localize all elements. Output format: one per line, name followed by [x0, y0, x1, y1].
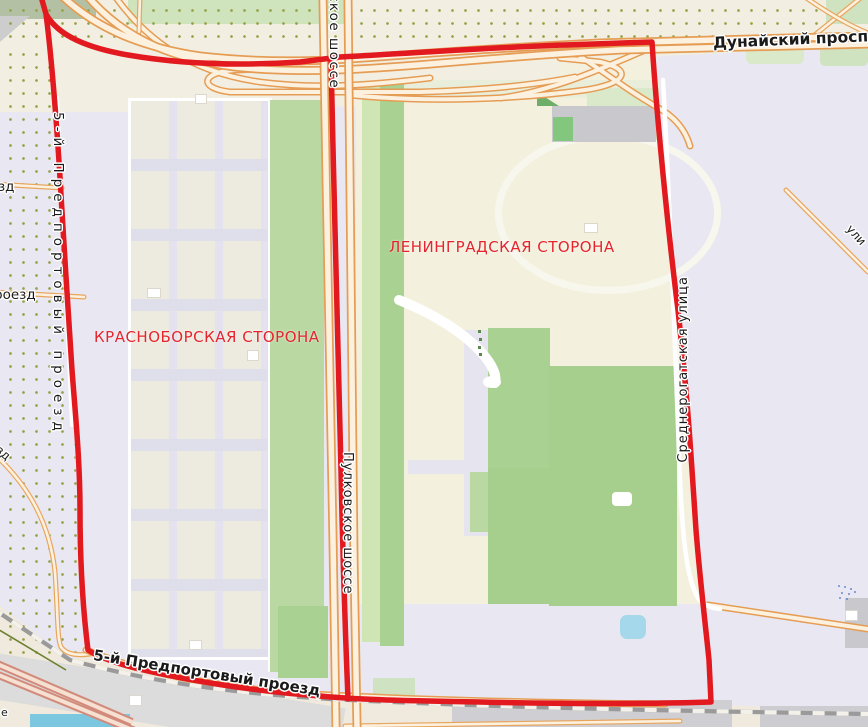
area-label-krasnoborskaya: КРАСНОБОРСКАЯ СТОРОНА: [94, 328, 320, 346]
street-label-predportovy-vertical: 5-й Предпортовый проезд: [50, 112, 66, 437]
building: [130, 696, 141, 705]
area-label-leningradskaya: ЛЕНИНГРАДСКАЯ СТОРОНА: [389, 238, 615, 256]
building: [585, 224, 597, 232]
building: [196, 95, 206, 103]
tiny-blue-label-smudge: [838, 585, 840, 587]
roads-layer: [0, 0, 868, 727]
map-canvas[interactable]: Дунайский проспект ское шоссе Пулковское…: [0, 0, 868, 727]
selection-boundary: [42, 0, 711, 704]
street-label-fragment-zd: зд: [0, 179, 15, 195]
tree-row: [478, 330, 481, 333]
building: [846, 611, 857, 620]
street-label-pulkovskoye: Пулковское шоссе: [340, 452, 355, 594]
street-label-pulkovskoye-partial: ское шоссе: [326, 0, 342, 89]
building: [190, 641, 201, 649]
interchange-ramps: [112, 0, 690, 146]
building: [148, 289, 160, 297]
building-in-green: [612, 492, 632, 506]
street-label-fragment-roezd: роезд: [0, 287, 36, 303]
minor-roads: [0, 0, 868, 726]
street-label-fragment-e: е: [1, 706, 8, 719]
street-label-srednerogatskaya: Среднерогатская улица: [676, 276, 691, 463]
building: [248, 351, 258, 360]
